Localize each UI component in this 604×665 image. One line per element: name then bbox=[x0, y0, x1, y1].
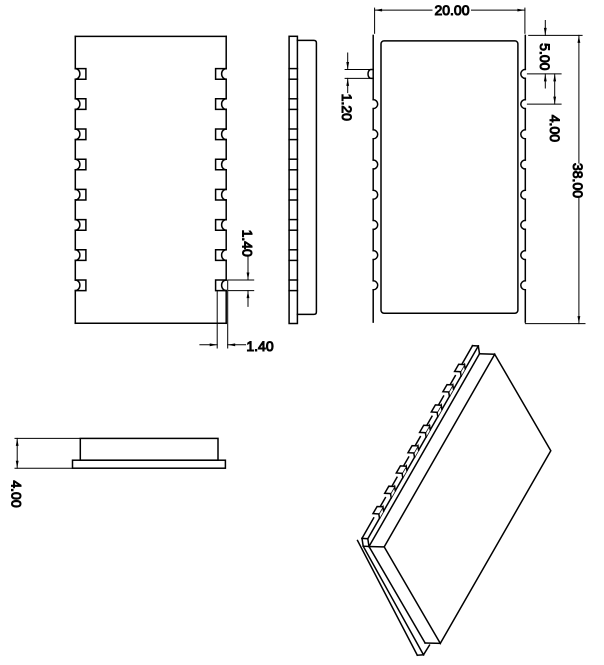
svg-text:1.20: 1.20 bbox=[339, 94, 355, 121]
svg-text:1.40: 1.40 bbox=[240, 230, 256, 257]
svg-text:20.00: 20.00 bbox=[434, 2, 469, 18]
svg-text:4.00: 4.00 bbox=[9, 480, 25, 507]
svg-text:5.00: 5.00 bbox=[537, 43, 553, 70]
svg-text:38.00: 38.00 bbox=[570, 163, 586, 198]
svg-text:4.00: 4.00 bbox=[547, 115, 563, 142]
svg-text:1.40: 1.40 bbox=[246, 338, 273, 354]
